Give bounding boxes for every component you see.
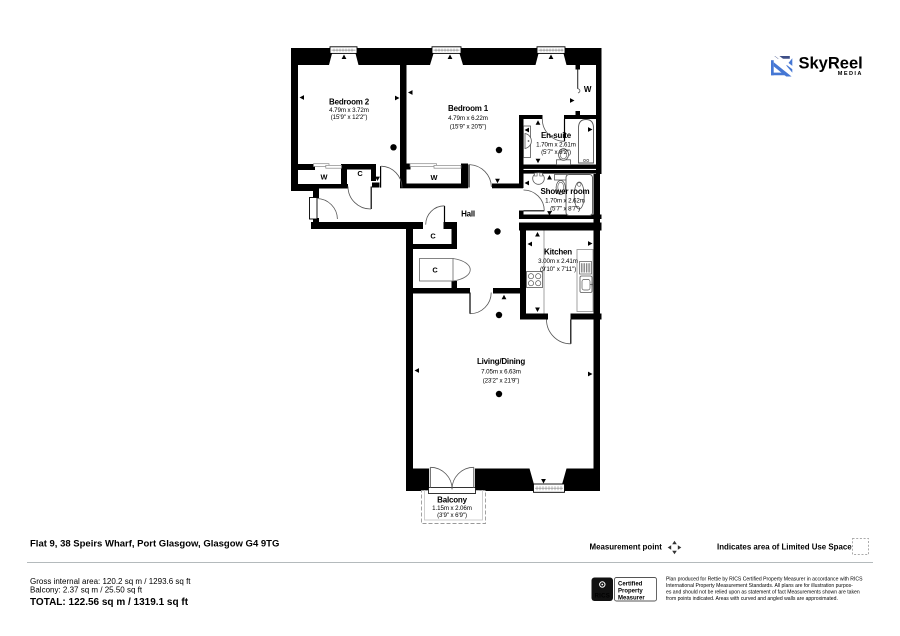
svg-text:Certified: Certified — [618, 582, 643, 588]
svg-text:Hall: Hall — [461, 210, 475, 219]
svg-text:(15'9" x 12'2"): (15'9" x 12'2") — [331, 114, 368, 121]
svg-text:Plan produced for Rettie by RI: Plan produced for Rettie by RICS Certifi… — [666, 577, 863, 583]
svg-text:7.05m x 6.63m: 7.05m x 6.63m — [481, 369, 521, 376]
svg-text:Bedroom 2: Bedroom 2 — [329, 98, 370, 107]
svg-text:(23'2" x 21'9"): (23'2" x 21'9") — [483, 378, 520, 385]
svg-text:(15'9" x 20'5"): (15'9" x 20'5") — [450, 124, 487, 131]
svg-text:Balcony: Balcony — [437, 496, 467, 505]
svg-text:Shower room: Shower room — [541, 187, 590, 196]
svg-text:from points indicated. Areas w: from points indicated. Areas with curved… — [666, 596, 838, 602]
svg-text:3.00m x 2.41m: 3.00m x 2.41m — [538, 258, 578, 265]
svg-text:Balcony: 2.37 sq m / 25.50 sq: Balcony: 2.37 sq m / 25.50 sq ft — [30, 585, 143, 594]
svg-text:Living/Dining: Living/Dining — [477, 357, 525, 366]
svg-text:C: C — [430, 232, 436, 241]
svg-text:C: C — [357, 169, 363, 178]
svg-text:En-suite: En-suite — [541, 131, 572, 140]
svg-text:1.70m x 2.61m: 1.70m x 2.61m — [536, 141, 576, 148]
svg-text:SkyReel: SkyReel — [799, 55, 863, 73]
svg-text:TOTAL: 122.56 sq m / 1319.1 sq: TOTAL: 122.56 sq m / 1319.1 sq ft — [30, 597, 189, 608]
svg-text:(5'7" x 8'7"): (5'7" x 8'7") — [550, 206, 580, 213]
svg-text:(5'7" x 8'2"): (5'7" x 8'2") — [541, 149, 571, 156]
svg-text:International Property Measur: International Property Measurement Stand… — [666, 583, 853, 589]
svg-text:(9'10" x 7'11"): (9'10" x 7'11") — [540, 266, 576, 273]
svg-text:es and should not be relied up: es and should not be relied upon as stat… — [666, 590, 860, 596]
svg-text:Indicates area of Limited Use: Indicates area of Limited Use Space — [717, 543, 852, 552]
svg-text:W: W — [584, 85, 592, 94]
svg-text:RICS: RICS — [595, 593, 611, 600]
svg-text:W: W — [431, 173, 438, 182]
svg-text:Bedroom 1: Bedroom 1 — [448, 104, 489, 113]
svg-text:Measurement point: Measurement point — [590, 543, 663, 552]
svg-text:W: W — [321, 173, 328, 182]
svg-text:MEDIA: MEDIA — [838, 71, 863, 77]
svg-text:Measurer: Measurer — [618, 596, 645, 602]
svg-text:4.79m x 6.22m: 4.79m x 6.22m — [448, 115, 488, 122]
svg-text:Kitchen: Kitchen — [544, 248, 572, 257]
svg-text:1.15m x 2.06m: 1.15m x 2.06m — [432, 505, 472, 512]
svg-text:(3'9" x 6'9"): (3'9" x 6'9") — [437, 512, 467, 519]
svg-text:Property: Property — [618, 589, 643, 595]
svg-text:1.70m x 2.62m: 1.70m x 2.62m — [545, 197, 585, 204]
svg-text:4.79m x 3.72m: 4.79m x 3.72m — [329, 107, 369, 114]
svg-text:Flat 9, 38 Speirs Wharf, Port: Flat 9, 38 Speirs Wharf, Port Glasgow, G… — [30, 539, 279, 550]
svg-text:C: C — [432, 266, 438, 275]
